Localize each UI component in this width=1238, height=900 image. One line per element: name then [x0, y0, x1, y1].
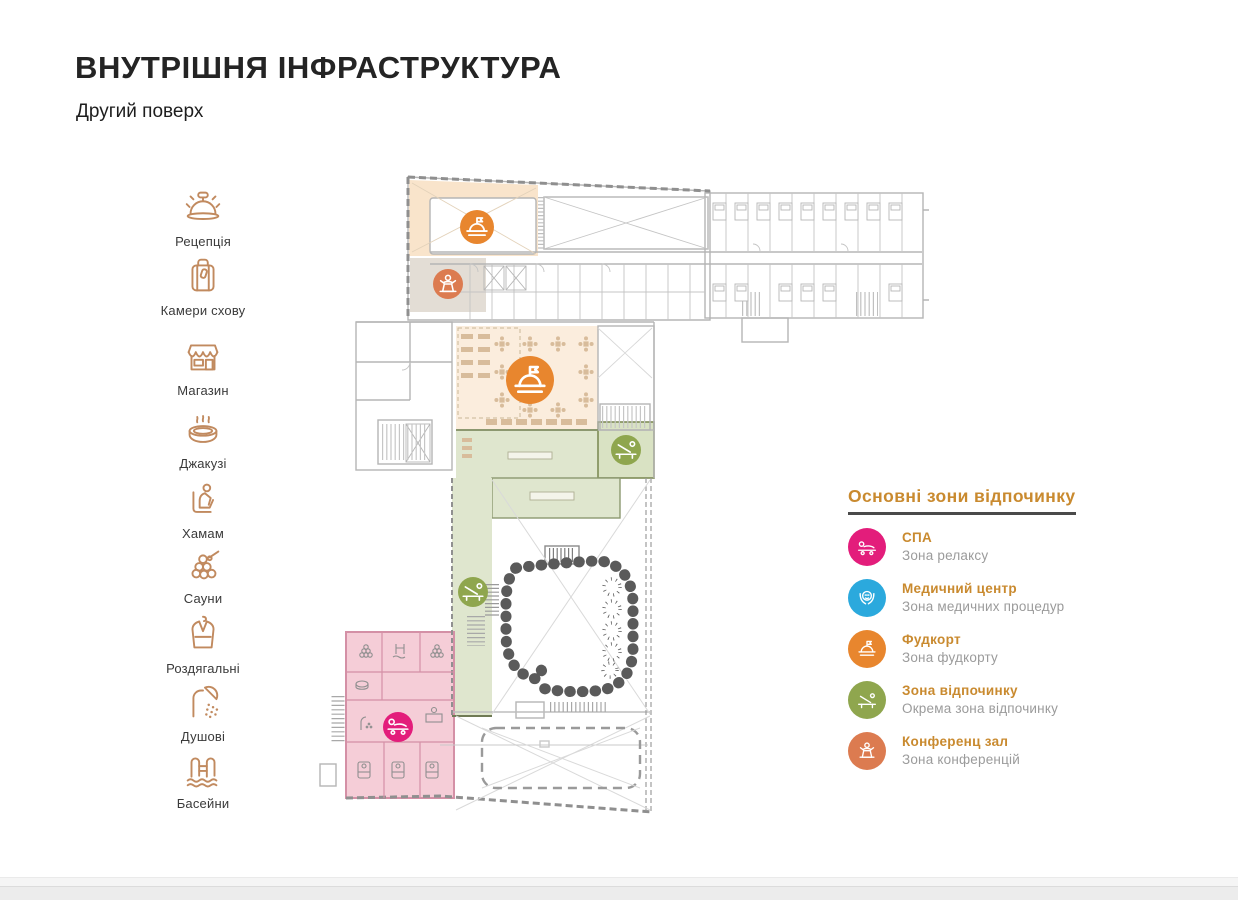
legend-item-name: Медичний центр [902, 579, 1064, 596]
amenity-label: Рецепція [155, 234, 251, 249]
amenity-shower: Душові [155, 679, 251, 744]
rest-zone-icon [848, 681, 886, 719]
legend-item-medical: Медичний центр Зона медичних процедур [848, 579, 1138, 617]
legend-item-desc: Зона медичних процедур [902, 599, 1064, 614]
legend-item-name: Зона відпочинку [902, 681, 1058, 698]
amenity-label: Магазин [155, 383, 251, 398]
spa-icon [848, 528, 886, 566]
foodcourt-icon [848, 630, 886, 668]
rest-zone-strip-badge [458, 577, 488, 607]
pool-planned-outline [482, 728, 640, 788]
legend-item-desc: Зона релаксу [902, 548, 988, 563]
legend-item-spa: СПА Зона релаксу [848, 528, 1138, 566]
amenity-label: Камери схову [155, 303, 251, 318]
floor-plan [318, 165, 940, 825]
legend-item-desc: Окрема зона відпочинку [902, 701, 1058, 716]
page-subtitle: Другий поверх [76, 101, 203, 123]
legend-item-conference: Конференц зал Зона конференцій [848, 732, 1138, 770]
infographic-page: ВНУТРІШНЯ ІНФРАСТРУКТУРА Другий поверх Р… [0, 0, 1238, 900]
amenity-label: Сауни [155, 591, 251, 606]
medical-icon [848, 579, 886, 617]
amenity-label: Джакузі [155, 456, 251, 471]
spa-badge [383, 712, 413, 742]
reception-bell-icon [155, 184, 251, 232]
legend-item-name: СПА [902, 528, 988, 545]
legend-item-desc: Зона конференцій [902, 752, 1020, 767]
floor-plan-svg [318, 165, 940, 825]
pool-icon [155, 746, 251, 794]
page-title: ВНУТРІШНЯ ІНФРАСТРУКТУРА [75, 50, 562, 86]
hammam-icon [155, 476, 251, 524]
conference-icon [848, 732, 886, 770]
amenity-label: Басейни [155, 796, 251, 811]
amenity-shop: Магазин [155, 333, 251, 398]
amenity-sauna: Сауни [155, 541, 251, 606]
amenity-label: Хамам [155, 526, 251, 541]
amenity-reception: Рецепція [155, 184, 251, 249]
rest-zone-east-badge [611, 435, 641, 465]
amenity-pools: Басейни [155, 746, 251, 811]
foodcourt-upper-badge [460, 210, 494, 244]
luggage-icon [155, 253, 251, 301]
changing-room-icon [155, 611, 251, 659]
amenity-changing-room: Роздягальні [155, 611, 251, 676]
amenity-label: Роздягальні [155, 661, 251, 676]
amenity-hammam: Хамам [155, 476, 251, 541]
legend-item-foodcourt: Фудкорт Зона фудкорту [848, 630, 1138, 668]
amenity-jacuzzi: Джакузі [155, 406, 251, 471]
page-bottom-bar [0, 886, 1238, 900]
legend-item-name: Конференц зал [902, 732, 1020, 749]
zone-fills [346, 180, 654, 798]
shop-icon [155, 333, 251, 381]
shower-icon [155, 679, 251, 727]
foodcourt-dining-badge [506, 356, 554, 404]
legend-item-desc: Зона фудкорту [902, 650, 998, 665]
jacuzzi-icon [155, 406, 251, 454]
legend-item-name: Фудкорт [902, 630, 998, 647]
legend-title: Основні зони відпочинку [848, 486, 1076, 515]
sauna-icon [155, 541, 251, 589]
legend-panel: Основні зони відпочинку СПА Зона релаксу… [848, 486, 1138, 770]
pool-lazy-river [506, 561, 633, 692]
conference-hall-badge [433, 269, 463, 299]
amenity-luggage: Камери схову [155, 253, 251, 318]
legend-item-rest-zone: Зона відпочинку Окрема зона відпочинку [848, 681, 1138, 719]
amenity-label: Душові [155, 729, 251, 744]
